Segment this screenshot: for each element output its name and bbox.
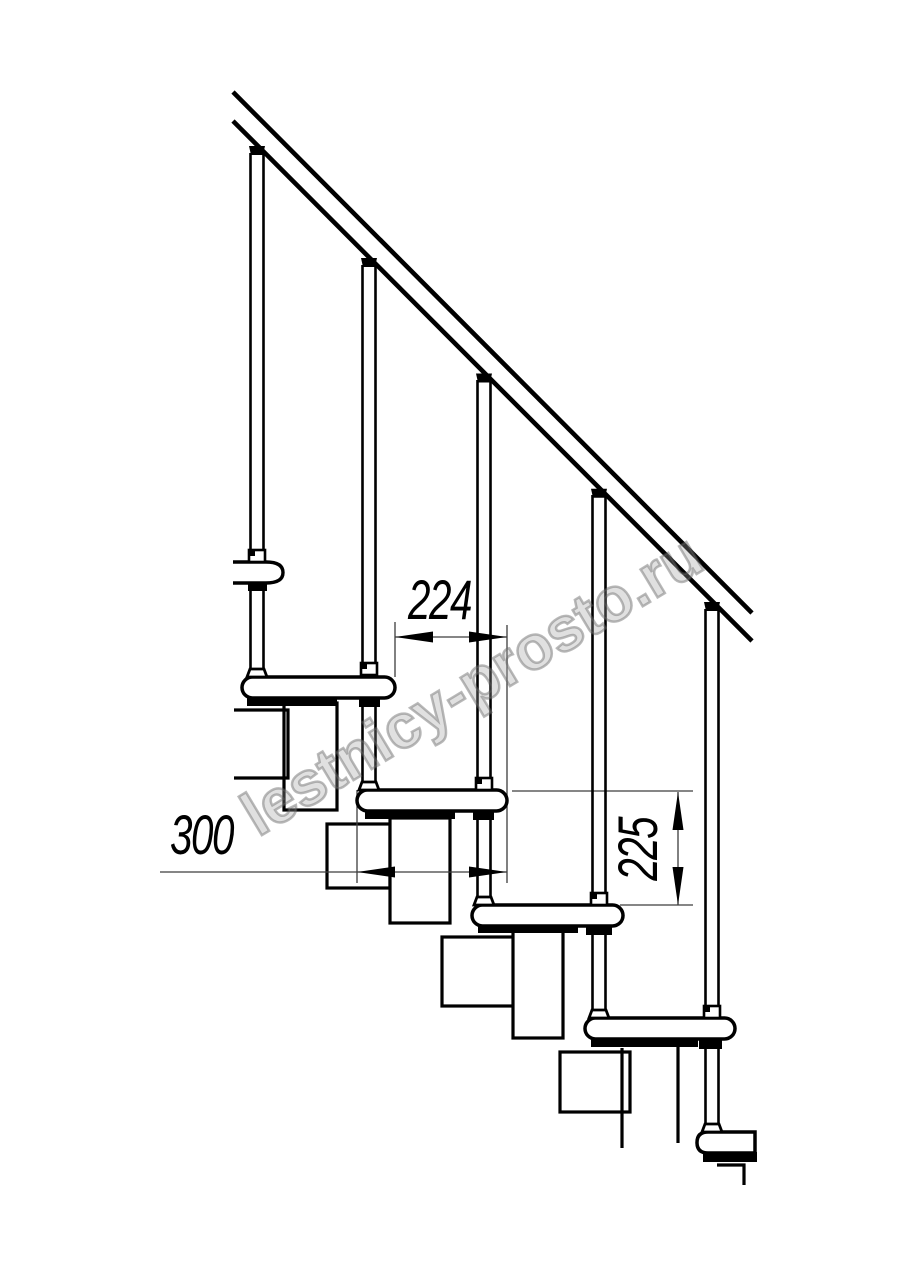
module-box <box>513 930 563 1038</box>
baluster-5 <box>706 609 719 1132</box>
module-box <box>390 818 450 923</box>
dimension-label-step-rise: 225 <box>610 823 666 881</box>
tread-2 <box>357 790 507 811</box>
dimension-label-step-depth: 300 <box>170 807 233 863</box>
arrowhead <box>673 792 684 830</box>
tread-5-cut <box>697 1132 755 1153</box>
staircase-drawing-page: 224 300 225 lestnicy-prosto.ru <box>0 0 914 1280</box>
tread-1 <box>242 677 395 698</box>
baluster-1 <box>251 153 264 675</box>
arrowhead <box>395 632 433 643</box>
dimension-label-step-run: 224 <box>408 572 471 628</box>
module-box <box>327 824 390 888</box>
tread-4 <box>585 1018 735 1039</box>
arrowhead <box>673 867 684 905</box>
landing-stub <box>233 562 283 583</box>
tread-3 <box>472 905 623 926</box>
bottom-cut-module <box>717 1165 744 1185</box>
staircase-drawing <box>0 0 914 1280</box>
arrowhead <box>469 867 507 878</box>
module-box <box>560 1052 630 1112</box>
module-box <box>442 937 516 1006</box>
